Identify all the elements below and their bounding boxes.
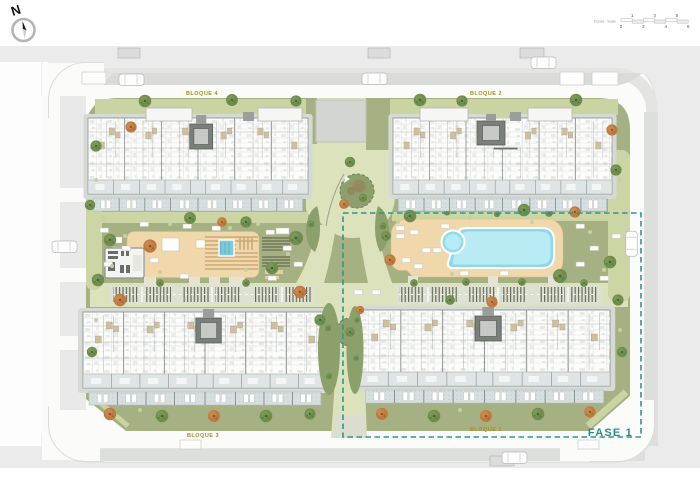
- svg-text:Escala : Scale: Escala : Scale: [594, 20, 616, 24]
- svg-text:BLOQUE 3: BLOQUE 3: [187, 433, 219, 439]
- svg-text:BLOQUE 2: BLOQUE 2: [470, 91, 502, 97]
- svg-text:BLOQUE 4: BLOQUE 4: [186, 91, 219, 97]
- svg-text:FASE 1: FASE 1: [588, 427, 633, 439]
- svg-text:BLOQUE 1: BLOQUE 1: [470, 427, 502, 433]
